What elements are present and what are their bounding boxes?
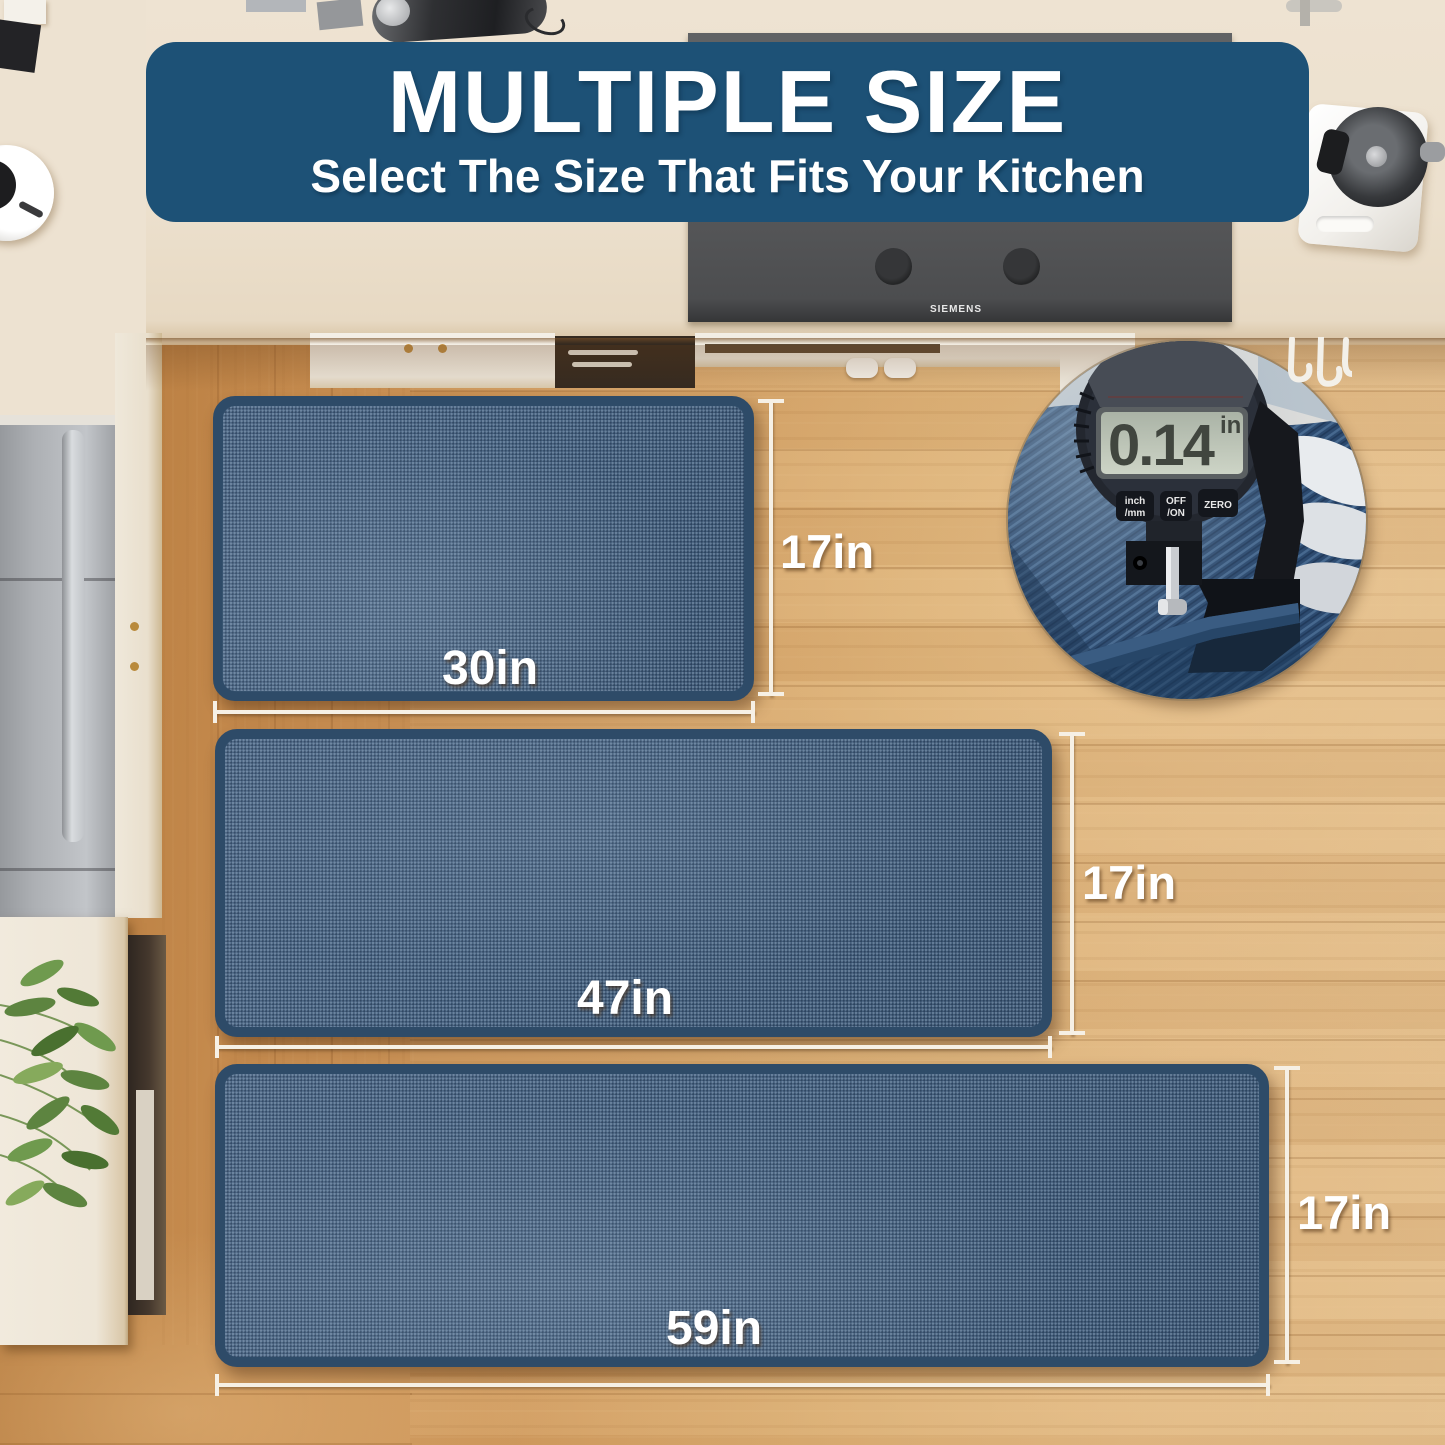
svg-text:OFF: OFF	[1166, 496, 1186, 507]
svg-text:inch: inch	[1125, 496, 1146, 507]
svg-text:ZERO: ZERO	[1204, 500, 1232, 511]
svg-text:/mm: /mm	[1125, 508, 1146, 519]
svg-text:0.14: 0.14	[1108, 413, 1215, 478]
svg-text:in: in	[1220, 412, 1241, 439]
svg-text:/ON: /ON	[1167, 508, 1185, 519]
